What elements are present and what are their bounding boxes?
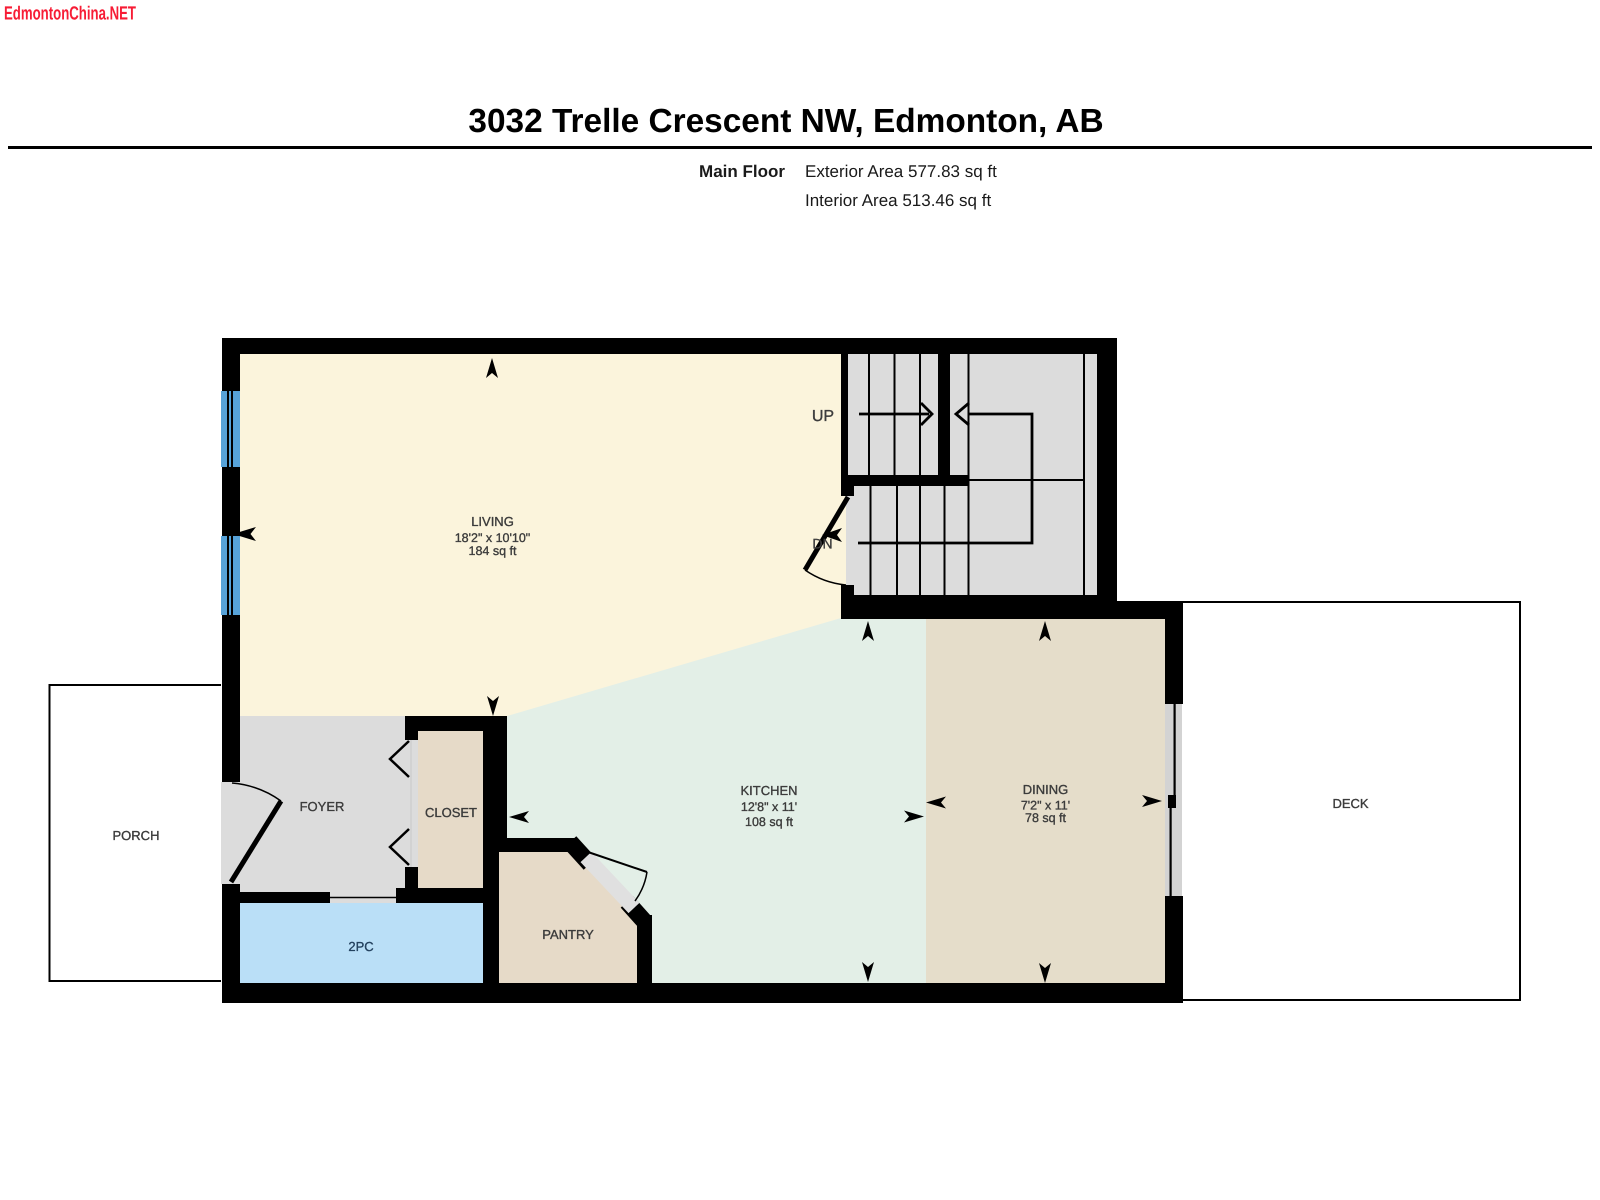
svg-text:Exterior Area 577.83 sq ft: Exterior Area 577.83 sq ft	[805, 162, 997, 181]
svg-text:78 sq ft: 78 sq ft	[1025, 811, 1067, 825]
svg-text:18'2" x 10'10": 18'2" x 10'10"	[455, 531, 531, 545]
svg-text:LIVING: LIVING	[471, 514, 514, 529]
svg-text:FOYER: FOYER	[300, 799, 345, 814]
svg-text:EdmontonChina.NET: EdmontonChina.NET	[4, 4, 136, 25]
svg-text:2PC: 2PC	[348, 939, 373, 954]
svg-text:Interior Area 513.46 sq ft: Interior Area 513.46 sq ft	[805, 191, 991, 210]
svg-text:12'8" x 11': 12'8" x 11'	[741, 800, 797, 814]
svg-text:CLOSET: CLOSET	[425, 805, 477, 820]
svg-text:3032 Trelle Crescent NW, Edmon: 3032 Trelle Crescent NW, Edmonton, AB	[468, 103, 1103, 140]
svg-text:UP: UP	[812, 408, 834, 425]
svg-text:PORCH: PORCH	[113, 828, 160, 843]
svg-text:184 sq ft: 184 sq ft	[469, 544, 517, 558]
svg-text:PANTRY: PANTRY	[542, 927, 594, 942]
svg-text:108 sq ft: 108 sq ft	[745, 815, 793, 829]
svg-text:DN: DN	[812, 536, 832, 552]
svg-text:DINING: DINING	[1023, 782, 1069, 797]
svg-text:DECK: DECK	[1332, 796, 1368, 811]
svg-text:Main Floor: Main Floor	[699, 162, 785, 181]
svg-text:KITCHEN: KITCHEN	[740, 783, 797, 798]
